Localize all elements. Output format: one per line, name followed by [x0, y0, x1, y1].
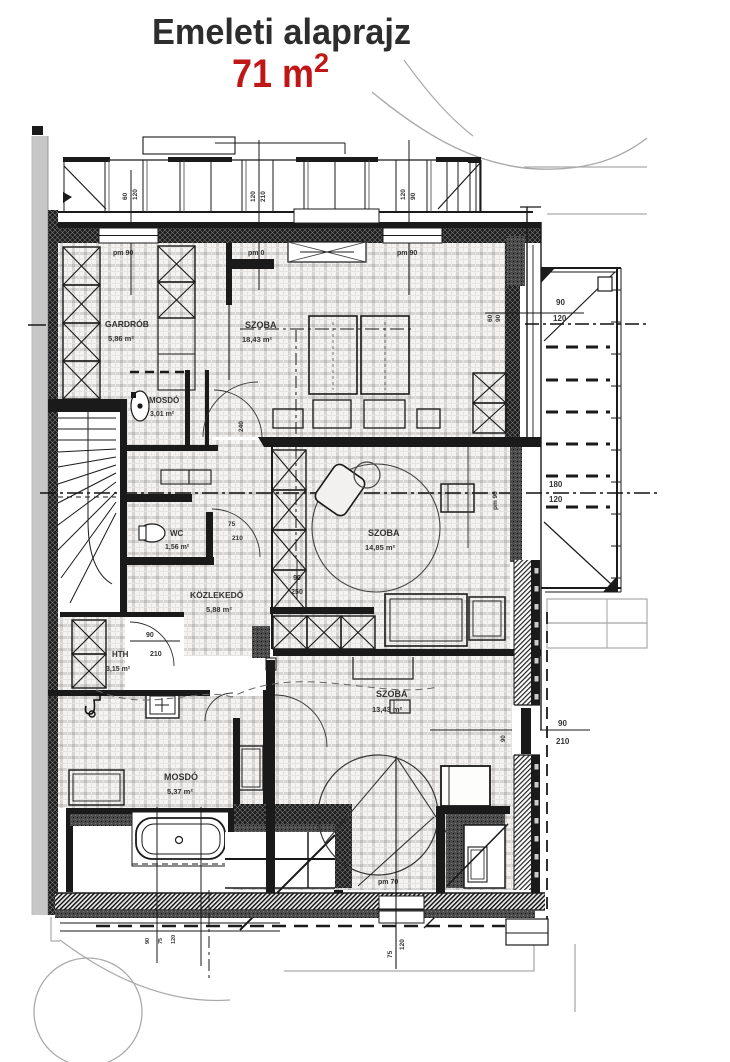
svg-text:75: 75: [228, 521, 236, 528]
svg-text:pm 70: pm 70: [378, 879, 398, 886]
svg-text:HTH: HTH: [112, 650, 129, 659]
svg-text:60: 60: [122, 192, 129, 200]
svg-text:210: 210: [232, 535, 243, 542]
svg-text:210: 210: [150, 651, 162, 658]
svg-text:90: 90: [410, 192, 417, 200]
svg-text:90: 90: [501, 735, 507, 742]
svg-text:120: 120: [132, 189, 139, 200]
svg-text:pm 90: pm 90: [492, 491, 499, 510]
svg-text:210: 210: [260, 191, 267, 202]
svg-text:14,85 m²: 14,85 m²: [365, 543, 396, 552]
svg-text:180: 180: [549, 480, 563, 489]
svg-text:90: 90: [558, 719, 567, 728]
svg-text:13,43 m²: 13,43 m²: [372, 705, 403, 714]
svg-text:5,37 m²: 5,37 m²: [167, 787, 193, 796]
svg-text:MOSDÓ: MOSDÓ: [164, 771, 198, 782]
svg-text:SZOBA: SZOBA: [245, 320, 277, 330]
svg-text:Emeleti alaprajz: Emeleti alaprajz: [152, 11, 411, 52]
svg-text:75: 75: [387, 950, 394, 958]
svg-text:KÖZLEKEDŐ: KÖZLEKEDŐ: [190, 589, 244, 600]
svg-text:71 m: 71 m: [232, 52, 314, 96]
svg-text:pm 0: pm 0: [248, 250, 264, 257]
svg-text:SZOBA: SZOBA: [376, 689, 408, 699]
svg-text:240: 240: [238, 421, 245, 432]
svg-text:3,15 m²: 3,15 m²: [106, 666, 131, 673]
svg-text:120: 120: [399, 939, 406, 950]
svg-text:210: 210: [556, 737, 570, 746]
svg-text:5,88 m²: 5,88 m²: [206, 605, 232, 614]
svg-text:5,86 m²: 5,86 m²: [108, 334, 134, 343]
svg-text:60: 60: [487, 314, 494, 322]
svg-text:2: 2: [314, 48, 329, 78]
svg-text:pm 90: pm 90: [113, 250, 133, 257]
svg-text:120: 120: [400, 189, 407, 200]
svg-text:90: 90: [146, 632, 154, 639]
svg-text:SZOBA: SZOBA: [368, 528, 400, 538]
svg-text:120: 120: [171, 935, 177, 944]
svg-text:120: 120: [549, 495, 563, 504]
svg-text:120: 120: [553, 314, 567, 323]
svg-text:3,01 m²: 3,01 m²: [150, 411, 175, 418]
svg-text:GARDRÓB: GARDRÓB: [105, 318, 149, 329]
svg-text:pm 90: pm 90: [397, 250, 417, 257]
svg-text:75: 75: [158, 938, 164, 944]
svg-text:18,43 m²: 18,43 m²: [242, 335, 273, 344]
svg-text:1,56 m²: 1,56 m²: [165, 544, 190, 551]
svg-text:90: 90: [495, 314, 502, 322]
svg-text:90: 90: [145, 938, 151, 944]
svg-text:120: 120: [250, 191, 257, 202]
svg-text:WC: WC: [170, 529, 184, 538]
svg-text:MOSDÓ: MOSDÓ: [149, 396, 179, 405]
svg-text:90: 90: [556, 298, 565, 307]
